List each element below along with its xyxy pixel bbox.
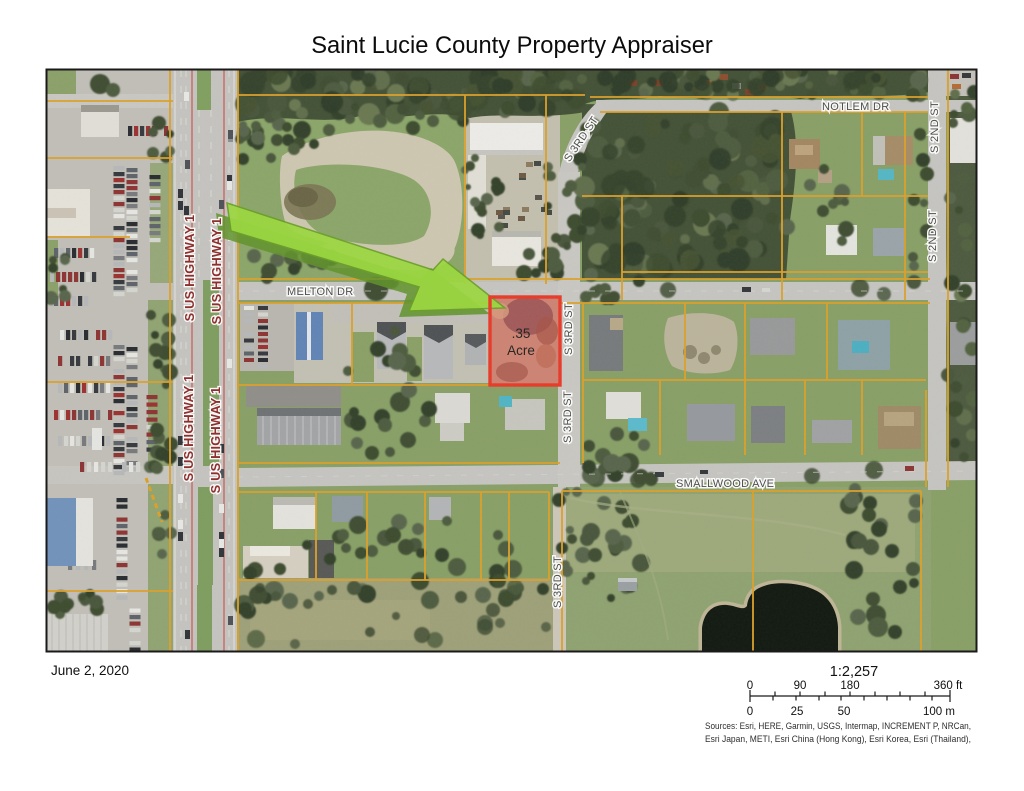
svg-text:25: 25	[791, 706, 804, 718]
svg-text:June 2, 2020: June 2, 2020	[51, 663, 129, 678]
svg-text:100 m: 100 m	[923, 706, 955, 718]
svg-text:50: 50	[838, 706, 851, 718]
svg-text:0: 0	[747, 706, 753, 718]
svg-text:90: 90	[794, 680, 807, 692]
svg-text:Saint Lucie County Property Ap: Saint Lucie County Property Appraiser	[311, 33, 713, 59]
svg-text:360 ft: 360 ft	[934, 680, 964, 692]
svg-text:Esri Japan, METI, Esri China (: Esri Japan, METI, Esri China (Hong Kong)…	[705, 734, 971, 744]
svg-text:1:2,257: 1:2,257	[830, 664, 878, 680]
svg-text:180: 180	[840, 680, 859, 692]
svg-text:Sources: Esri, HERE, Garmin, U: Sources: Esri, HERE, Garmin, USGS, Inter…	[705, 721, 971, 731]
